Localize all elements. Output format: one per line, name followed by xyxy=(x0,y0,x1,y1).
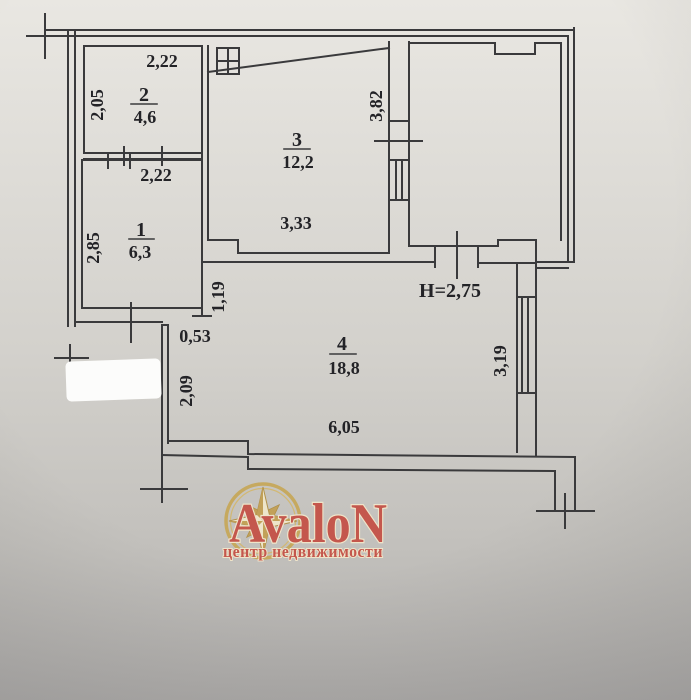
dim-room2-depth: 2,05 xyxy=(87,89,107,121)
dim-room4-left: 2,09 xyxy=(176,375,196,407)
white-redaction-box xyxy=(65,358,161,401)
dim-room1-width: 2,22 xyxy=(140,165,172,185)
room2-area: 4,6 xyxy=(134,107,157,127)
dim-room4-right: 3,19 xyxy=(490,345,510,377)
dim-partition: 1,19 xyxy=(208,281,228,313)
room2-number: 2 xyxy=(139,84,149,106)
room4-area: 18,8 xyxy=(328,358,360,378)
floor-plan-photo: 2,22 2,05 2 4,6 2,22 2,85 1 6,3 3 12,2 3… xyxy=(0,0,691,700)
room3-area: 12,2 xyxy=(282,152,314,172)
dim-room2-width: 2,22 xyxy=(146,51,178,71)
room4-number: 4 xyxy=(337,333,347,355)
dim-room3-width: 3,33 xyxy=(280,213,312,233)
room1-number: 1 xyxy=(136,219,146,241)
ceiling-height-label: H=2,75 xyxy=(419,280,481,302)
floor-plan-svg: 2,22 2,05 2 4,6 2,22 2,85 1 6,3 3 12,2 3… xyxy=(0,0,691,700)
dim-entry-width: 0,53 xyxy=(179,326,211,346)
brand-tagline: центр недвижимости xyxy=(223,542,383,561)
dim-loggia-side: 3,82 xyxy=(366,90,386,122)
brand-logo: AvaloN центр недвижимости xyxy=(223,484,387,561)
room3-number: 3 xyxy=(292,129,302,151)
dim-room4-width: 6,05 xyxy=(328,417,360,437)
dim-room1-depth: 2,85 xyxy=(83,232,103,264)
room1-area: 6,3 xyxy=(129,242,152,262)
